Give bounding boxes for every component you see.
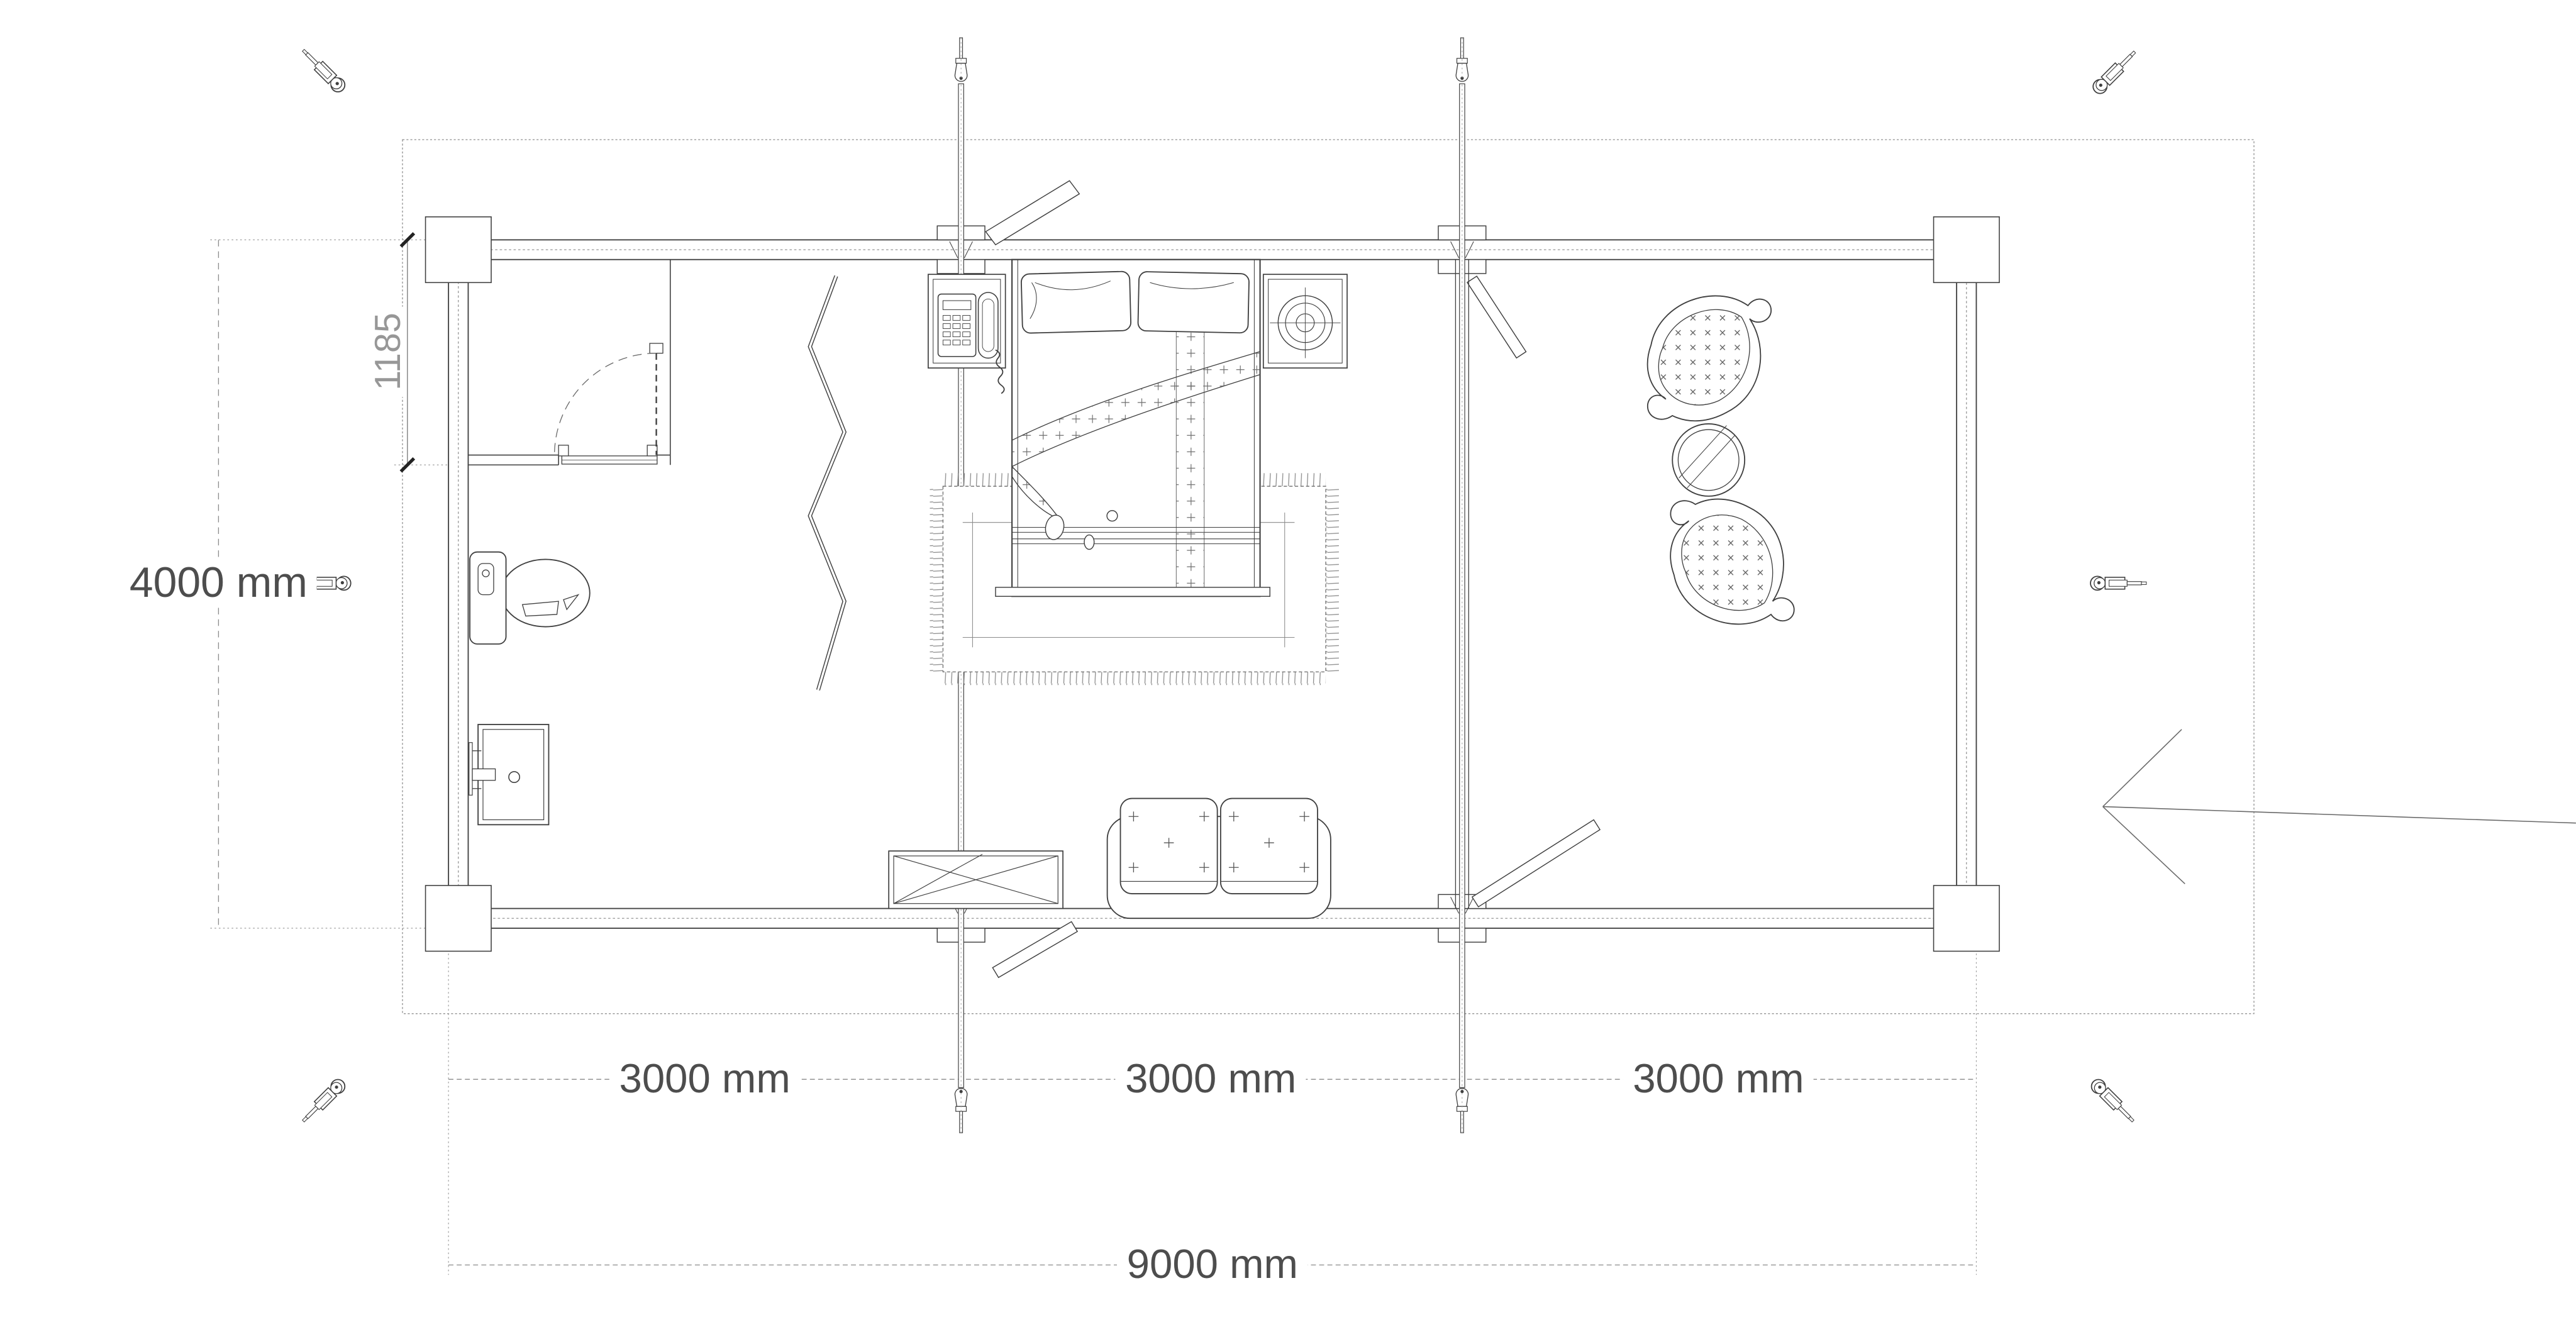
crossed-table (889, 851, 1063, 908)
door-stop (558, 445, 569, 456)
rug-fringe-bottom (943, 672, 1326, 685)
rug-fringe-left (930, 486, 943, 672)
dim-label-bay2: 3000 mm (1115, 1058, 1306, 1101)
turnbuckle-icon-bottom-right (2089, 1077, 2138, 1126)
washbasin (469, 725, 549, 825)
double-bed (996, 260, 1270, 597)
dim-label-overall-depth: 4000 mm (119, 561, 317, 606)
dim-label-bay1: 3000 mm (609, 1058, 801, 1101)
dim-label-bathroom-depth: 1185 (369, 306, 406, 397)
faucet (472, 769, 496, 780)
nightstand-lamp (1263, 274, 1347, 368)
sofa (1108, 799, 1331, 919)
round-table (1672, 424, 1745, 496)
turnbuckle-icon-bottom-left (299, 1077, 348, 1126)
board-bottom-left (992, 921, 1077, 977)
bed-footboard (996, 587, 1270, 596)
rug-fringe-right (1326, 486, 1339, 672)
turnbuckle-icon-right (2090, 576, 2146, 590)
board-top-left (985, 180, 1079, 245)
drawing-stage: 4000 mm 1185 3000 mm 3000 mm 3000 mm 900… (0, 0, 2576, 1327)
faucet-plate (469, 743, 472, 796)
dim-label-overall-width: 9000 mm (1117, 1243, 1308, 1287)
turnbuckle-icon-top-left (299, 45, 348, 94)
door-hinge-frame (650, 343, 663, 353)
entrance-arrow (2103, 730, 2576, 884)
dim-label-bay3: 3000 mm (1623, 1058, 1814, 1101)
turnbuckle-icon-top-right (2090, 47, 2140, 96)
bed-runner (1176, 328, 1204, 588)
plan-drawing (0, 0, 2576, 1327)
floor-plan-sheet: 4000 mm 1185 3000 mm 3000 mm 3000 mm 900… (0, 0, 2576, 1327)
